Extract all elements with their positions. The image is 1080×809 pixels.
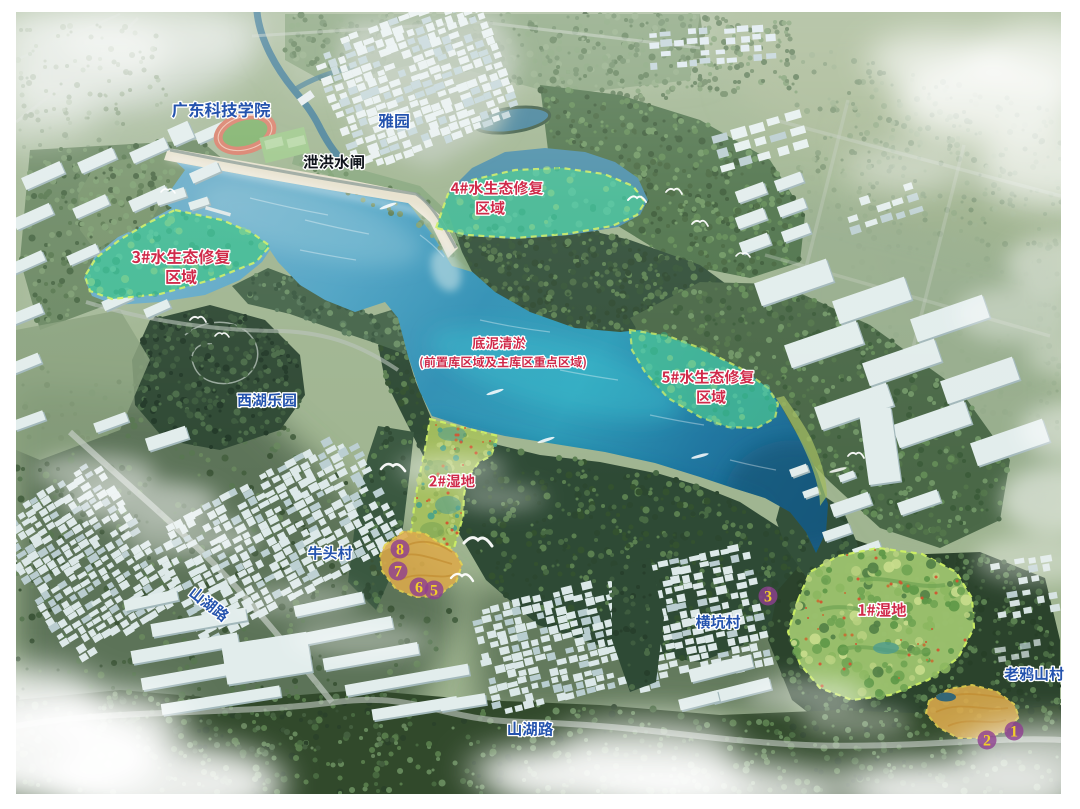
- svg-text:2: 2: [983, 733, 991, 750]
- svg-text:8: 8: [396, 542, 404, 559]
- svg-text:7: 7: [394, 564, 402, 581]
- svg-text:6: 6: [415, 580, 423, 597]
- svg-text:3: 3: [764, 589, 772, 606]
- svg-text:5: 5: [430, 583, 438, 600]
- svg-text:1: 1: [1010, 724, 1018, 741]
